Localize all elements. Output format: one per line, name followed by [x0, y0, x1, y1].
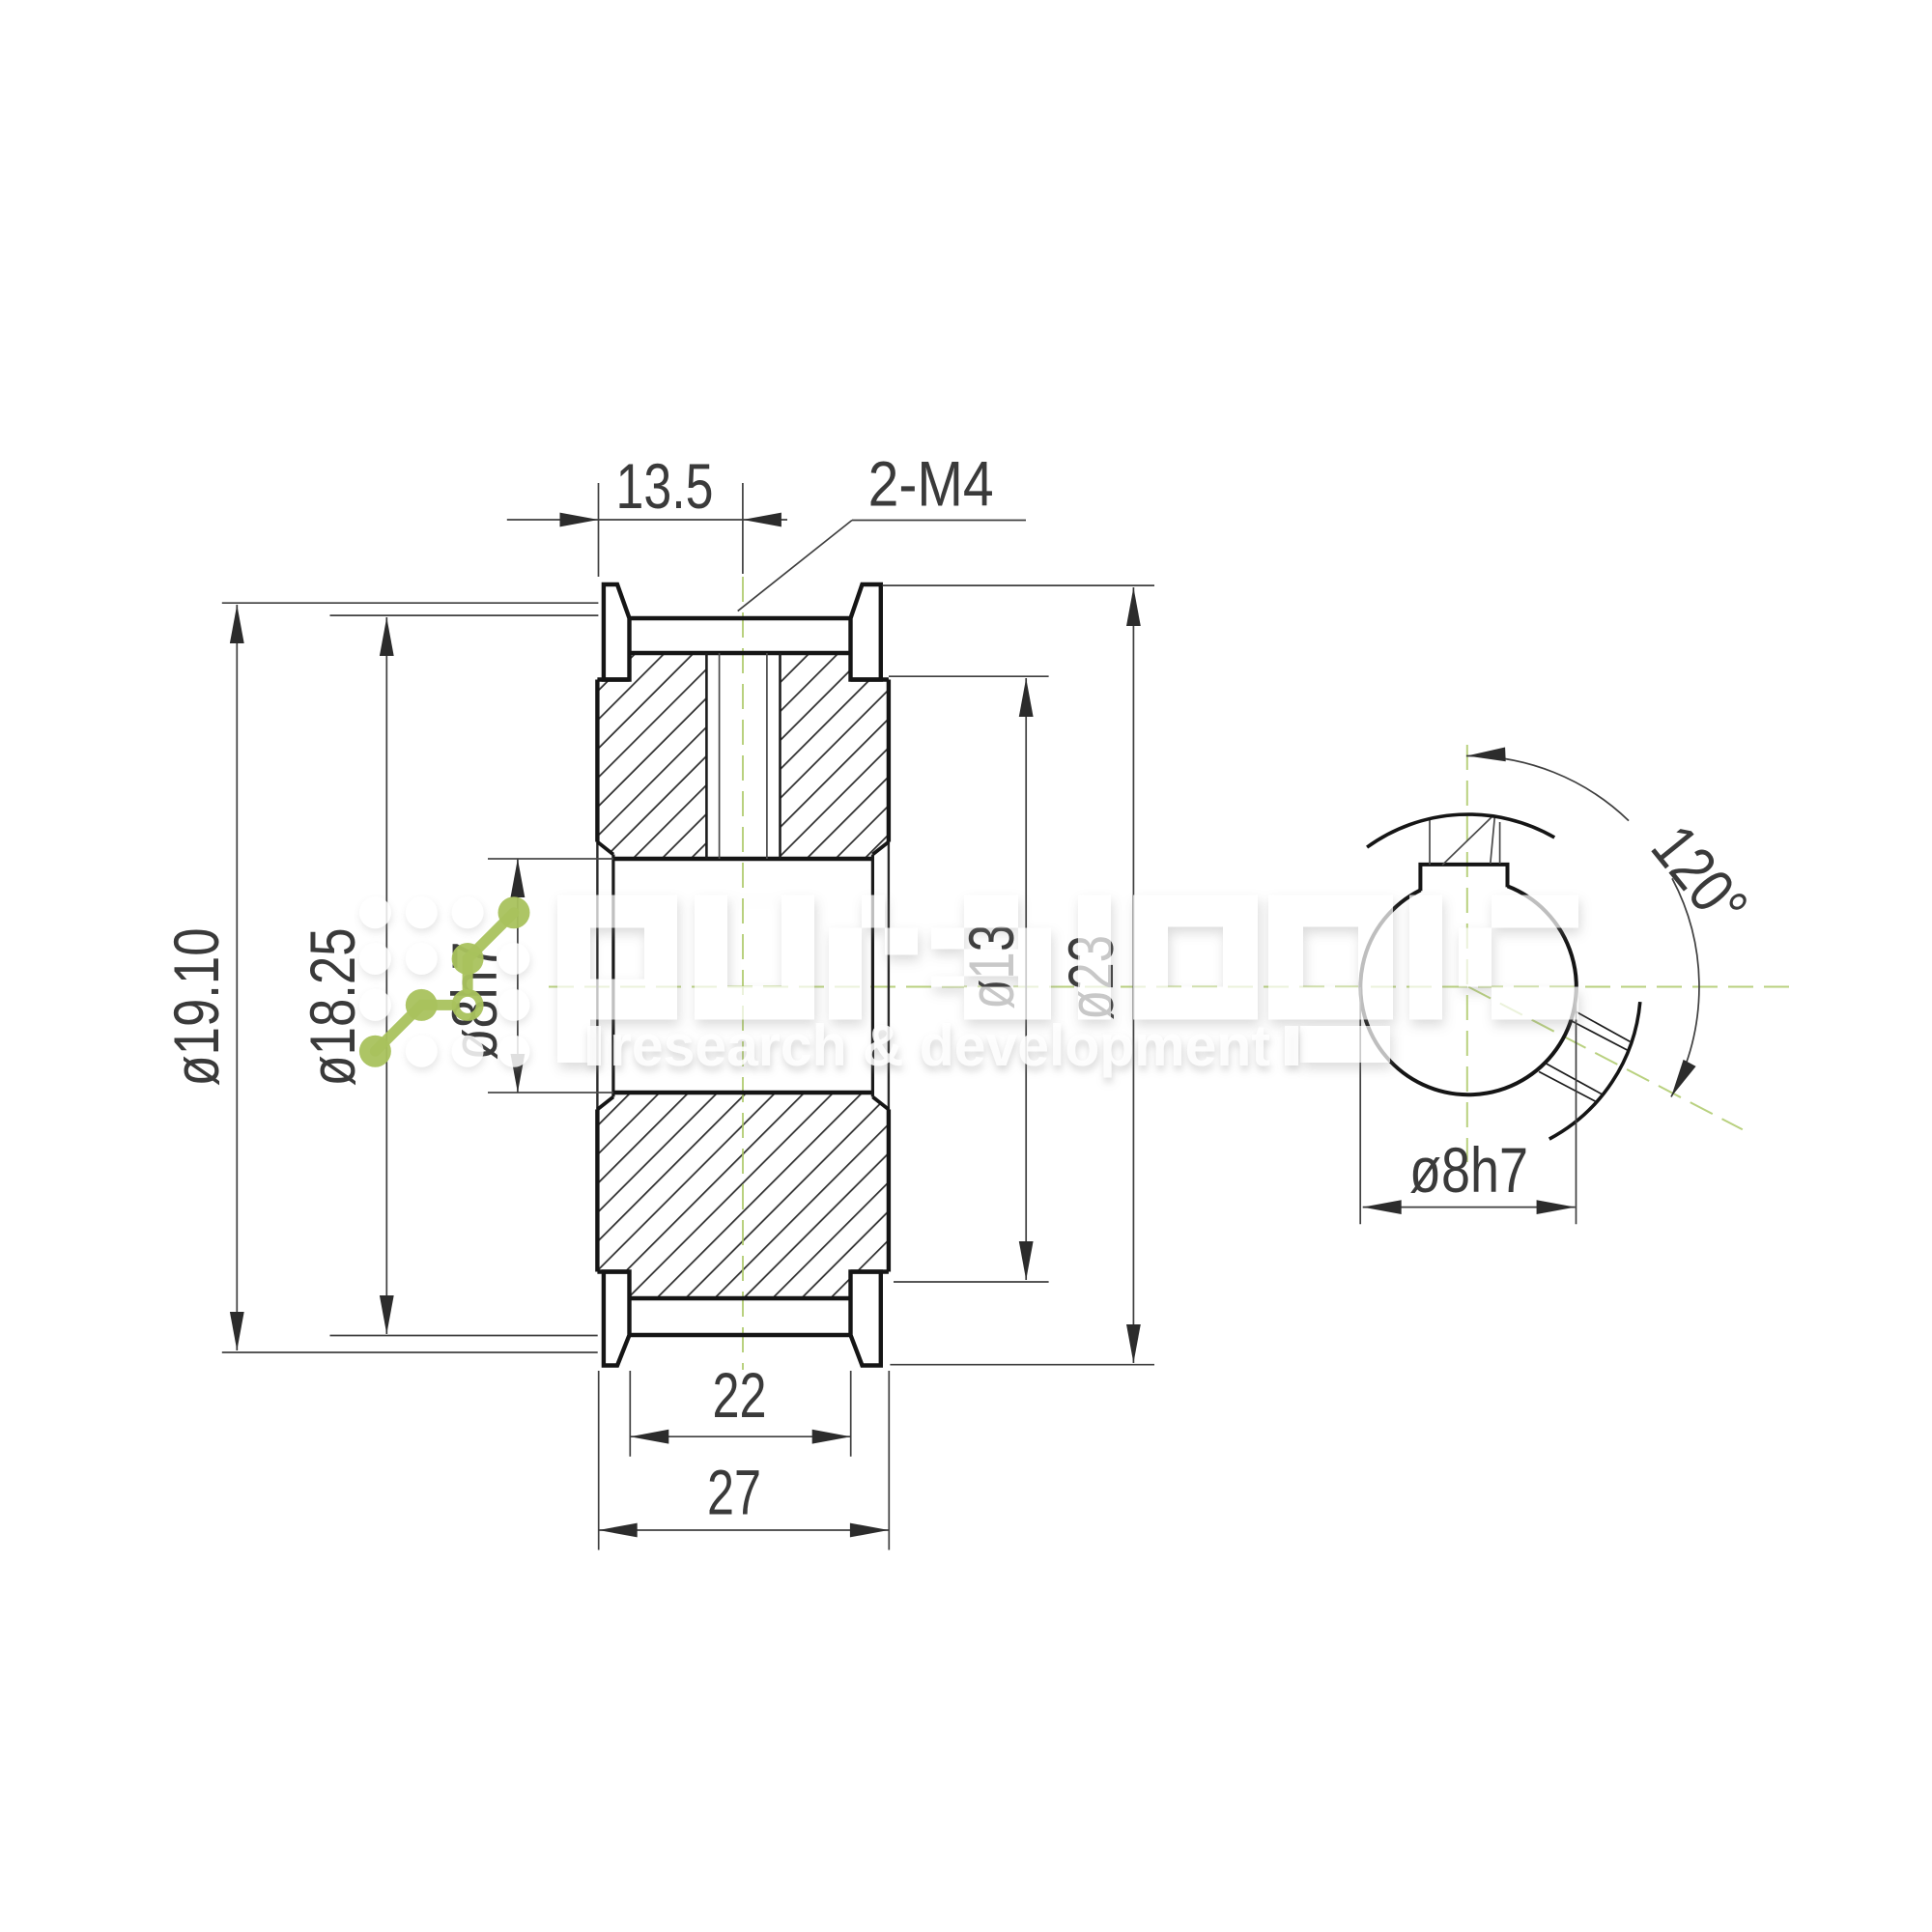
svg-text:ø18.25: ø18.25 — [297, 928, 368, 1087]
svg-text:22: 22 — [713, 1359, 767, 1431]
svg-text:research & development: research & development — [610, 1013, 1270, 1078]
svg-text:ø8h7: ø8h7 — [1409, 1134, 1528, 1206]
svg-text:2-M4: 2-M4 — [868, 448, 994, 520]
svg-text:13.5: 13.5 — [616, 450, 714, 522]
svg-text:ø19.10: ø19.10 — [160, 928, 232, 1087]
svg-text:27: 27 — [707, 1457, 761, 1528]
